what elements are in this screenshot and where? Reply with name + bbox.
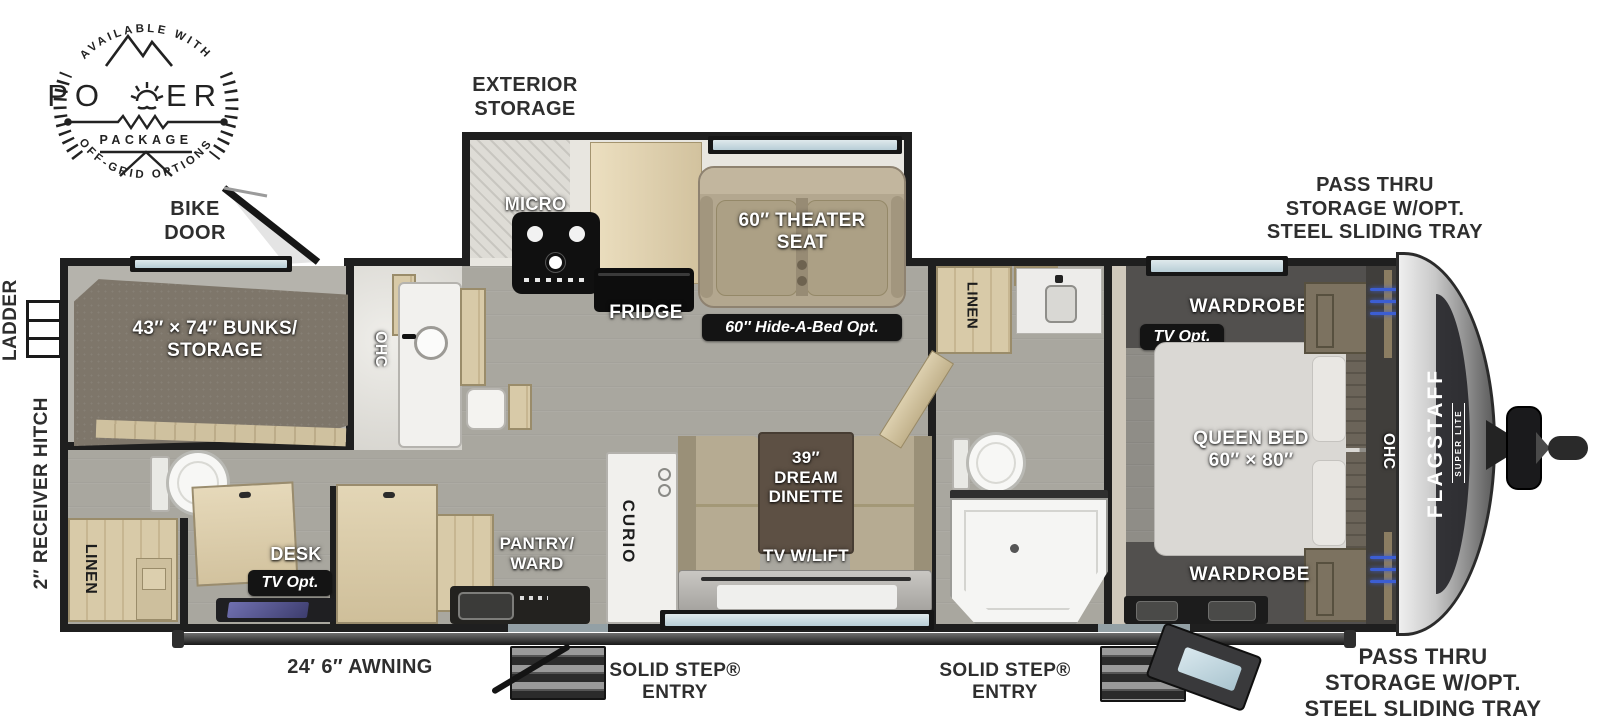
- rear-bath-sink: [414, 326, 448, 360]
- linen-rear-label: LINEN: [81, 529, 99, 609]
- awning-cap-right: [1344, 630, 1356, 648]
- bedroom-dresser: [1124, 596, 1268, 624]
- ohc-rear-label: OHC: [371, 319, 389, 379]
- slideout-wall-left: [462, 132, 470, 266]
- shower-pan: [950, 498, 1108, 624]
- fridge-label: FRIDGE: [594, 302, 698, 324]
- rear-bath-faucet: [402, 334, 416, 339]
- awning-cap-left: [172, 630, 184, 648]
- tv-lift-cabinet: [678, 570, 932, 612]
- ladder-label: LADDER: [0, 275, 22, 365]
- kitchen-counter: [590, 142, 702, 284]
- tv-lift-label: TV W/LIFT: [740, 546, 872, 566]
- theater-armrest-right: [891, 196, 904, 298]
- logo-sun-icon: [131, 82, 163, 108]
- dinette-label: 39″ DREAM DINETTE: [756, 448, 856, 507]
- bedroom-window: [1146, 256, 1288, 276]
- logo-title-right: ER: [166, 78, 223, 113]
- mid-toilet: [966, 432, 1026, 494]
- brand-block: FLAGSTAFF SUPER LITE: [1424, 343, 1470, 543]
- theater-armrest-left: [700, 196, 713, 298]
- desk-label: DESK: [246, 544, 346, 565]
- entry-front-label: SOLID STEP® ENTRY: [930, 660, 1080, 705]
- brand-series: SUPER LITE: [1452, 403, 1465, 482]
- bunk-window: [130, 256, 292, 272]
- rear-bath-ottoman: [466, 388, 506, 430]
- headboard-top: [1346, 350, 1366, 448]
- wardrobe-bottom-label: WARDROBE: [1158, 564, 1342, 586]
- ladder-icon: [26, 300, 62, 358]
- brand-name: FLAGSTAFF: [1424, 343, 1448, 543]
- logo-subtitle: PACKAGE: [99, 133, 192, 147]
- theater-seat-label: 60″ THEATER SEAT: [716, 210, 888, 254]
- wardrobe-cabinet-top: [1304, 282, 1368, 354]
- hitch-handle: [1548, 436, 1588, 460]
- tv-opt-rear-badge: TV Opt.: [248, 570, 332, 596]
- pantry-label: PANTRY/ WARD: [482, 534, 592, 573]
- curio-label: CURIO: [618, 487, 638, 577]
- stove-cooktop: [512, 212, 600, 294]
- wardrobe-murphy-panel: [336, 484, 438, 624]
- kitchen-sink-counter: [450, 586, 590, 624]
- rear-hall-cabinet: [508, 384, 532, 430]
- entry-door-window: [1177, 647, 1242, 692]
- desk-laptop: [216, 598, 336, 622]
- hide-a-bed-badge: 60″ Hide-A-Bed Opt.: [702, 314, 902, 341]
- queen-bed-label: QUEEN BED 60″ × 80″: [1156, 428, 1346, 472]
- wall-rear: [60, 258, 68, 632]
- awning-label: 24′ 6″ AWNING: [270, 656, 450, 680]
- entry-threshold-mid: [508, 624, 608, 632]
- logo-arc-top: AVAILABLE WITH: [78, 23, 214, 62]
- pass-thru-top-label: PASS THRU STORAGE W/OPT. STEEL SLIDING T…: [1245, 174, 1505, 245]
- power-package-logo: AVAILABLE WITH OFF-GRID OPTIONS PO ER PA…: [48, 4, 244, 208]
- pillow-bottom: [1312, 460, 1346, 546]
- pass-thru-bottom-label: PASS THRU STORAGE W/OPT. STEEL SLIDING T…: [1258, 644, 1588, 722]
- wall-desk-1: [180, 518, 188, 624]
- svg-text:AVAILABLE WITH: AVAILABLE WITH: [78, 23, 214, 62]
- floorplan-canvas: AVAILABLE WITH OFF-GRID OPTIONS PO ER PA…: [0, 0, 1600, 728]
- ohc-front-label: OHC: [1379, 421, 1397, 481]
- wall-top-b: [344, 258, 470, 266]
- logo-resistor-line: [65, 116, 226, 128]
- mid-bath-vanity: [1016, 268, 1102, 334]
- logo-title-left: PO: [48, 78, 106, 113]
- headboard-bottom: [1346, 452, 1366, 550]
- entry-mid-label: SOLID STEP® ENTRY: [600, 660, 750, 705]
- exterior-storage-label: EXTERIOR STORAGE: [455, 74, 595, 121]
- theater-window: [708, 136, 902, 154]
- linen-mid-label: LINEN: [964, 271, 981, 341]
- bedroom-left-wall-strip: [1112, 266, 1126, 624]
- receiver-hitch-label: 2″ RECEIVER HITCH: [31, 393, 53, 593]
- living-rear-window: [660, 610, 934, 630]
- curio-cabinet: [606, 452, 678, 624]
- rear-bath-drawers: [460, 288, 486, 386]
- bunks-label: 43″ × 74″ BUNKS/ STORAGE: [95, 318, 335, 362]
- rear-bath-vanity: [398, 282, 462, 448]
